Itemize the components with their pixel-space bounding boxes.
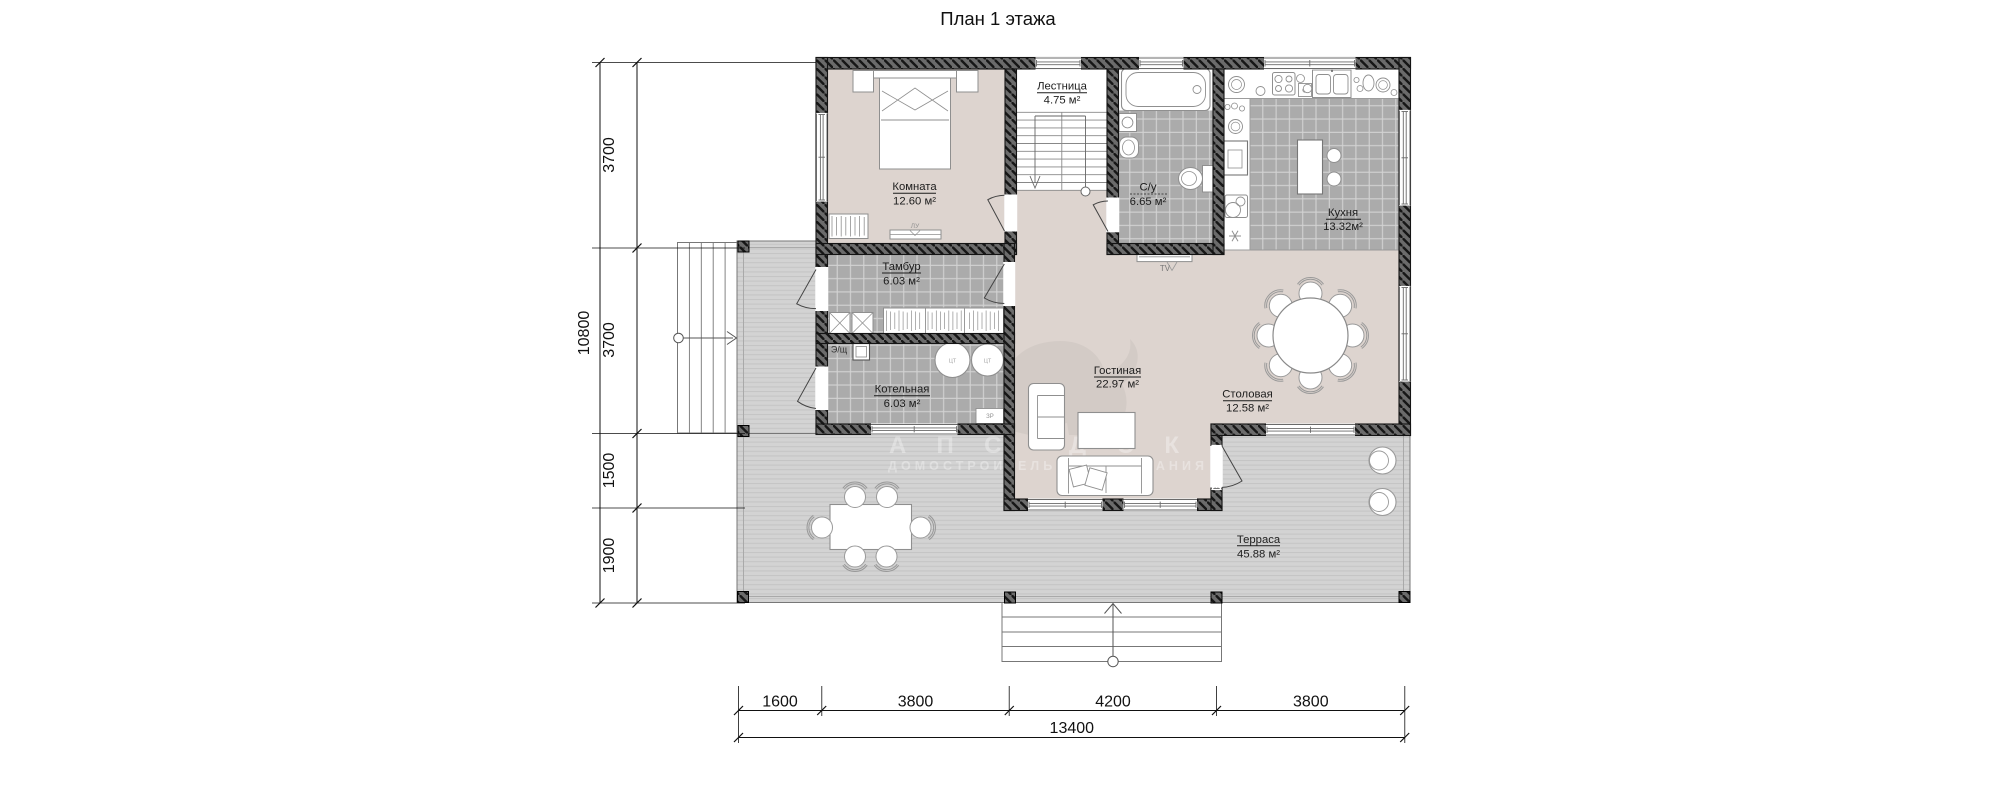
svg-text:Гостиная: Гостиная <box>1094 365 1141 377</box>
svg-text:6.03 м²: 6.03 м² <box>883 275 920 287</box>
svg-text:Котельная: Котельная <box>875 384 930 396</box>
svg-text:ЦТ: ЦТ <box>984 359 992 365</box>
svg-text:3700: 3700 <box>601 137 618 173</box>
svg-text:ЛУ: ЛУ <box>911 223 920 230</box>
svg-text:С/у: С/у <box>1140 182 1157 194</box>
svg-text:13.32м²: 13.32м² <box>1323 221 1363 233</box>
svg-text:ЦТ: ЦТ <box>949 359 957 365</box>
svg-text:3700: 3700 <box>601 322 618 358</box>
svg-text:22.97 м²: 22.97 м² <box>1096 379 1139 391</box>
svg-text:Кухня: Кухня <box>1328 207 1358 219</box>
svg-text:10800: 10800 <box>576 311 593 356</box>
svg-text:4200: 4200 <box>1095 694 1131 711</box>
svg-text:12.60 м²: 12.60 м² <box>893 195 936 207</box>
svg-text:6.65 м²: 6.65 м² <box>1130 196 1167 208</box>
svg-text:1600: 1600 <box>762 694 798 711</box>
svg-text:1900: 1900 <box>601 538 618 574</box>
svg-text:Тамбур: Тамбур <box>882 261 920 273</box>
svg-text:12.58 м²: 12.58 м² <box>1226 402 1269 414</box>
svg-text:45.88 м²: 45.88 м² <box>1237 549 1280 561</box>
svg-text:13400: 13400 <box>1050 720 1095 737</box>
svg-text:ЗР: ЗР <box>986 414 994 420</box>
svg-text:3800: 3800 <box>1293 694 1329 711</box>
svg-text:ДОМОСТРОИТЕЛЬНАЯ КОМПАНИЯ: ДОМОСТРОИТЕЛЬНАЯ КОМПАНИЯ <box>888 459 1204 473</box>
svg-text:4.75 м²: 4.75 м² <box>1044 95 1081 107</box>
svg-text:Столовая: Столовая <box>1222 389 1273 401</box>
svg-text:6.03 м²: 6.03 м² <box>884 398 921 410</box>
svg-text:1500: 1500 <box>601 453 618 489</box>
svg-text:3800: 3800 <box>898 694 934 711</box>
svg-text:Комната: Комната <box>892 181 937 193</box>
svg-text:План 1 этажа: План 1 этажа <box>940 8 1056 29</box>
svg-text:Терраса: Терраса <box>1237 534 1281 546</box>
svg-text:Лестница: Лестница <box>1037 81 1088 93</box>
svg-text:Э/щ: Э/щ <box>831 345 848 355</box>
